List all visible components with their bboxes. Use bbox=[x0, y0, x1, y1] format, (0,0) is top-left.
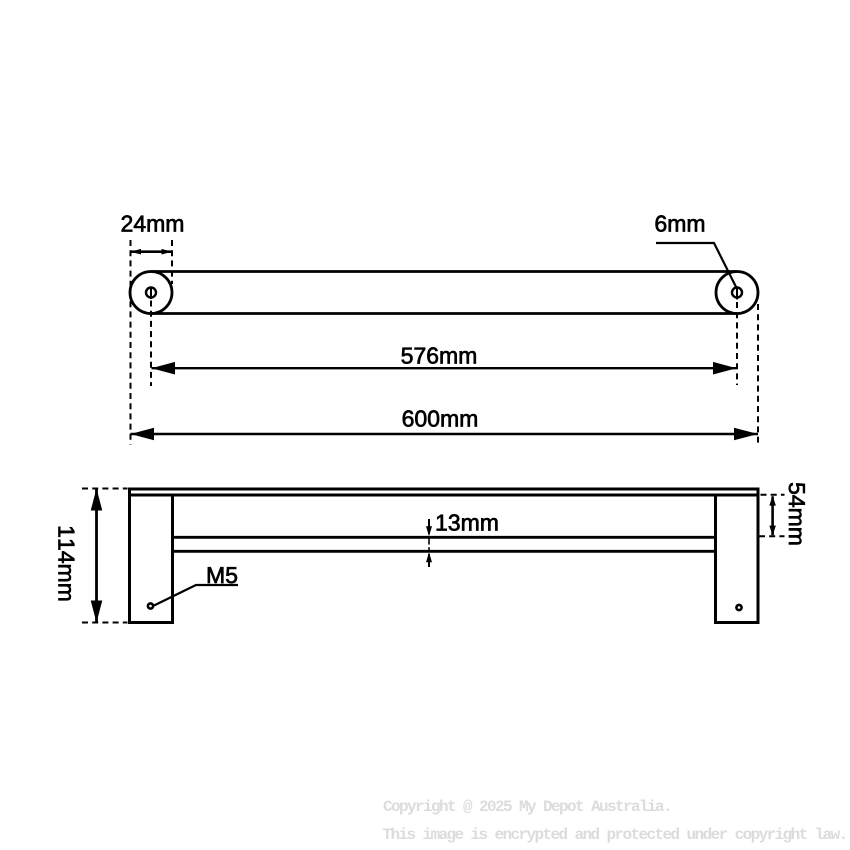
svg-text:Copyright @ 2025 My Depot Aust: Copyright @ 2025 My Depot Australia. bbox=[383, 798, 671, 816]
svg-text:This image is encrypted and pr: This image is encrypted and protected un… bbox=[383, 826, 847, 844]
